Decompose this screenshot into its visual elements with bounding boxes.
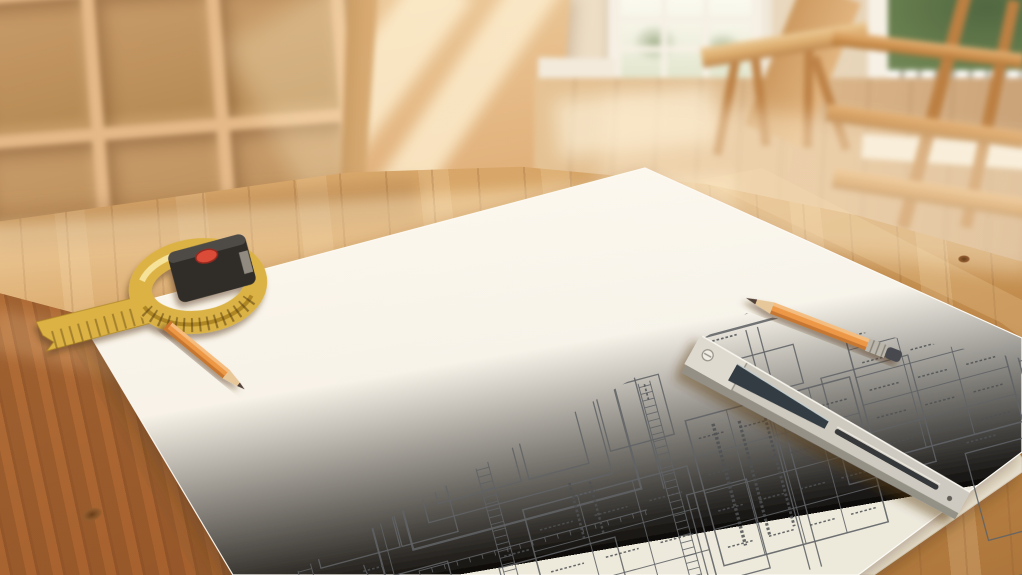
- blueprint-overlay: [0, 0, 1022, 575]
- scene-photo: [0, 0, 1022, 575]
